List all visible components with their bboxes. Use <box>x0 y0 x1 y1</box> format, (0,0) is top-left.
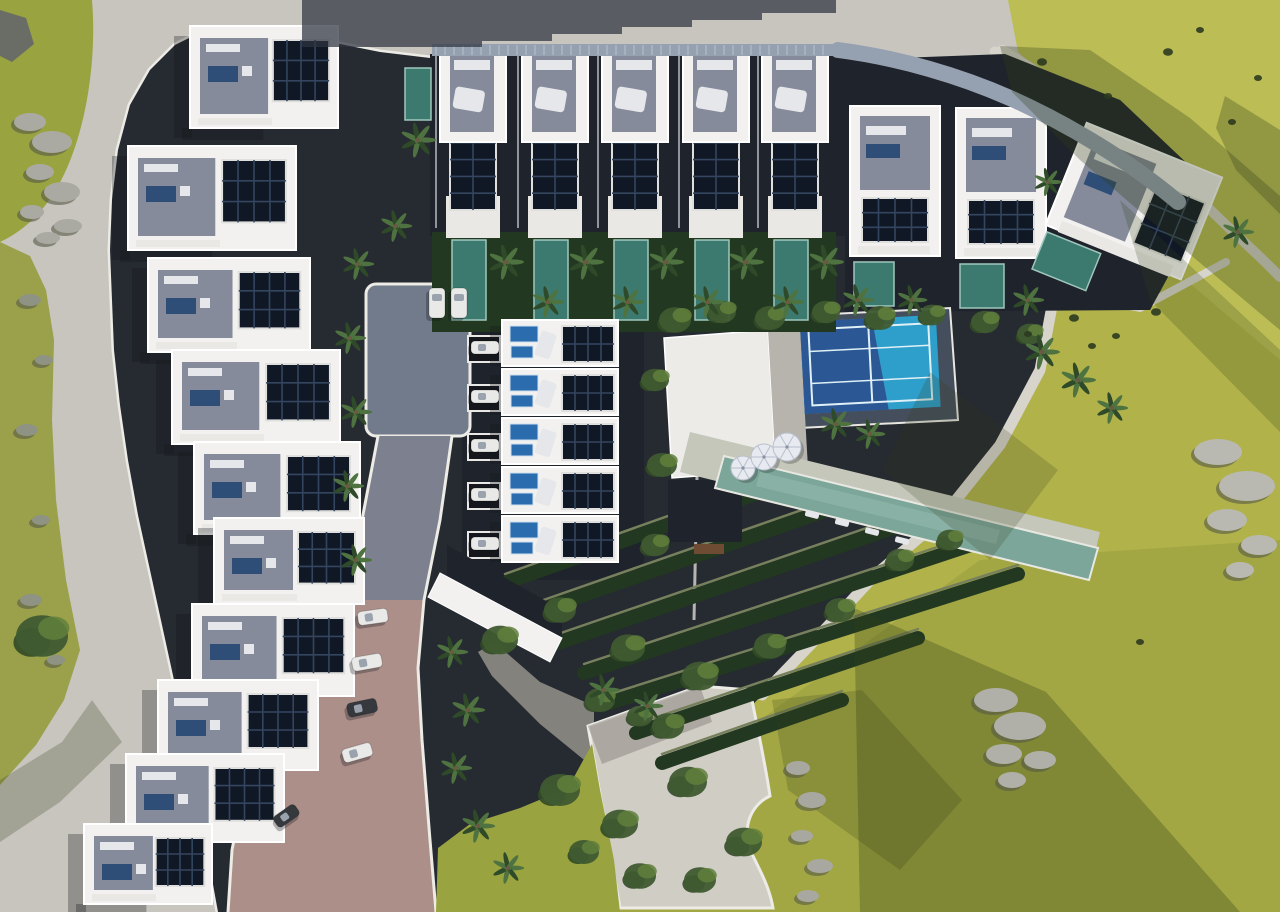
terrace-bench <box>454 60 490 70</box>
rock <box>54 219 82 233</box>
canopy-highlight <box>673 308 692 322</box>
palm-trunk <box>856 298 860 302</box>
car-windshield <box>478 442 486 449</box>
canopy-highlight <box>698 868 717 882</box>
villa <box>156 350 340 456</box>
rock <box>994 712 1046 740</box>
car <box>448 288 467 321</box>
skylight <box>510 522 538 538</box>
canopy-highlight <box>653 370 670 383</box>
terrace-table <box>246 482 256 492</box>
canopy-highlight <box>638 864 657 878</box>
terrace-bench <box>208 622 242 630</box>
terrace-table <box>224 390 234 400</box>
palm-trunk <box>1040 350 1045 355</box>
terrace-bench <box>866 126 906 135</box>
canopy-highlight <box>660 454 678 468</box>
canopy-highlight <box>768 634 787 648</box>
palm-trunk <box>394 224 398 228</box>
shrub <box>1104 93 1112 99</box>
terrace-bench <box>188 368 222 376</box>
lower-deck <box>180 434 264 441</box>
rock <box>19 294 41 306</box>
canopy-highlight <box>824 302 841 315</box>
car-windshield <box>478 344 486 351</box>
terrace-lounger <box>144 794 174 810</box>
canopy-highlight <box>720 302 737 315</box>
rock <box>44 182 80 202</box>
canopy-highlight <box>898 550 915 563</box>
shrub <box>1228 119 1236 125</box>
shrub <box>1136 639 1144 645</box>
lower-deck <box>222 594 297 601</box>
palm-trunk <box>466 708 471 713</box>
skylight <box>511 493 533 505</box>
palm-trunk <box>1046 180 1050 184</box>
canopy-highlight <box>878 307 896 321</box>
lower-deck <box>92 894 156 901</box>
palm-trunk <box>346 484 350 488</box>
car <box>468 390 499 406</box>
palm-trunk <box>824 260 829 265</box>
canopy-highlight <box>38 617 69 640</box>
car <box>468 439 499 455</box>
rock <box>974 688 1018 712</box>
canopy-highlight <box>653 535 670 548</box>
car-body <box>429 288 445 318</box>
rock <box>791 830 813 842</box>
villa <box>68 824 212 912</box>
canopy-highlight <box>666 714 685 728</box>
terrace-lounger <box>102 864 132 880</box>
palm-trunk <box>1026 298 1030 302</box>
villa-shadow <box>76 904 146 912</box>
terrace-bench <box>174 698 208 706</box>
terrace-lounger <box>166 298 196 314</box>
shrub <box>1151 308 1161 316</box>
paver-walkway <box>432 44 838 56</box>
terrace-table <box>180 186 190 196</box>
terrace-table <box>266 558 276 568</box>
private-pool <box>960 264 1004 308</box>
villa <box>198 518 364 616</box>
terrace-lounger <box>232 558 262 574</box>
palm-trunk <box>354 410 358 414</box>
palm-trunk <box>706 300 710 304</box>
canopy-highlight <box>697 663 719 679</box>
rock <box>16 424 38 436</box>
skylight <box>511 444 533 456</box>
palm-trunk <box>356 262 360 266</box>
terrace-bench <box>206 44 240 52</box>
parasol-pole <box>741 466 744 469</box>
terrace-lounger <box>972 146 1006 160</box>
rock <box>36 232 60 244</box>
shrub <box>1112 333 1120 339</box>
lower-deck <box>964 248 1036 256</box>
canopy-highlight <box>497 627 519 643</box>
canopy-highlight <box>983 312 1000 325</box>
palm-trunk <box>354 558 358 562</box>
rock <box>20 594 42 606</box>
palm-trunk <box>584 260 589 265</box>
car-windshield <box>358 658 367 667</box>
canopy-highlight <box>617 811 639 827</box>
rock <box>1024 751 1056 769</box>
car-windshield <box>364 613 373 622</box>
terrace-table <box>210 720 220 730</box>
lower-deck <box>858 246 930 254</box>
rock <box>47 655 65 665</box>
palm-trunk <box>506 866 510 870</box>
car-windshield <box>478 491 486 498</box>
rock <box>998 772 1026 788</box>
car <box>468 537 499 553</box>
car <box>468 488 499 504</box>
skylight <box>510 424 538 440</box>
lower-deck <box>136 240 220 247</box>
canopy-highlight <box>558 598 577 612</box>
villa <box>956 108 1046 258</box>
terrace-lounger <box>866 144 900 158</box>
terrace-table <box>244 644 254 654</box>
rock <box>1207 509 1247 531</box>
lower-deck <box>156 342 237 349</box>
skylight <box>510 326 538 342</box>
palm-trunk <box>646 704 650 708</box>
canopy-highlight <box>625 635 645 650</box>
rock <box>986 744 1022 764</box>
lower-deck <box>198 118 272 125</box>
rock <box>32 515 50 525</box>
wood-table <box>694 544 724 554</box>
canopy-highlight <box>582 841 600 855</box>
terrace-bench <box>144 164 178 172</box>
terrace-bench <box>697 60 733 70</box>
canopy-highlight <box>838 599 856 613</box>
terrace-bench <box>230 536 264 544</box>
terrace-table <box>242 66 252 76</box>
canopy-highlight <box>557 775 581 793</box>
rock <box>786 761 810 775</box>
villa <box>112 146 296 262</box>
terrace-table <box>178 794 188 804</box>
palm-trunk <box>834 422 838 426</box>
villa <box>850 106 940 256</box>
rock <box>1219 471 1275 501</box>
palm-trunk <box>664 260 669 265</box>
skylight <box>511 395 533 407</box>
palm-trunk <box>546 300 550 304</box>
rock <box>1241 535 1277 555</box>
terrace-lounger <box>190 390 220 406</box>
canopy-highlight <box>741 829 763 845</box>
shrub <box>1037 58 1047 66</box>
shrub <box>1254 75 1262 81</box>
rock <box>26 164 54 180</box>
car-windshield <box>454 294 464 301</box>
car <box>468 341 499 357</box>
aerial-site-plan-render <box>0 0 1280 912</box>
palm-trunk <box>868 432 872 436</box>
terrace-table <box>200 298 210 308</box>
terrace-bench <box>142 772 176 780</box>
shrub <box>1196 27 1204 33</box>
terrace-bench <box>536 60 572 70</box>
car-windshield <box>432 294 442 301</box>
palm-trunk <box>1076 378 1081 383</box>
terrace-lounger <box>176 720 206 736</box>
palm-trunk <box>744 260 749 265</box>
palm-trunk <box>1110 406 1114 410</box>
skylight <box>510 375 538 391</box>
rock <box>32 131 72 153</box>
terrace-lounger <box>210 644 240 660</box>
shrub <box>1069 314 1079 322</box>
terrace-bench <box>100 842 134 850</box>
skylight <box>511 346 533 358</box>
private-pool <box>405 68 431 120</box>
skylight <box>510 473 538 489</box>
palm-trunk <box>504 260 509 265</box>
terrace-lounger <box>146 186 176 202</box>
palm-trunk <box>626 300 630 304</box>
villa <box>132 258 310 364</box>
palm-trunk <box>602 688 606 692</box>
rock <box>35 355 53 365</box>
shrub <box>1088 343 1096 349</box>
palm-trunk <box>450 650 454 654</box>
palm-trunk <box>416 138 421 143</box>
terrace-bench <box>972 128 1012 137</box>
skylight <box>511 542 533 554</box>
palm-trunk <box>348 336 352 340</box>
terrace-lounger <box>208 66 238 82</box>
terrace-lounger <box>212 482 242 498</box>
shrub <box>1163 48 1173 56</box>
canopy-highlight <box>948 530 964 542</box>
car-body <box>451 288 467 318</box>
car-windshield <box>478 540 486 547</box>
car-windshield <box>478 393 486 400</box>
terrace-bench <box>164 276 198 284</box>
palm-trunk <box>786 300 790 304</box>
rock <box>1194 439 1242 465</box>
palm-trunk <box>910 298 914 302</box>
palm-trunk <box>454 766 458 770</box>
terrace-bench <box>616 60 652 70</box>
villa-shadow <box>182 128 263 140</box>
rock <box>797 890 819 902</box>
rock <box>1226 562 1254 578</box>
palm-trunk <box>476 824 481 829</box>
terrace-table <box>136 864 146 874</box>
parasol-pole <box>785 445 788 448</box>
rock <box>20 205 44 219</box>
rock <box>14 113 46 131</box>
rock <box>798 792 826 808</box>
parasol-pole <box>762 455 765 458</box>
terrace-bench <box>210 460 244 468</box>
site-plan-svg <box>0 0 1280 912</box>
rock <box>807 859 833 873</box>
canopy-highlight <box>685 768 708 785</box>
canopy-highlight <box>930 305 946 317</box>
terrace-bench <box>776 60 812 70</box>
shrub <box>1024 331 1032 337</box>
car <box>426 288 445 321</box>
palm-trunk <box>1236 230 1240 234</box>
